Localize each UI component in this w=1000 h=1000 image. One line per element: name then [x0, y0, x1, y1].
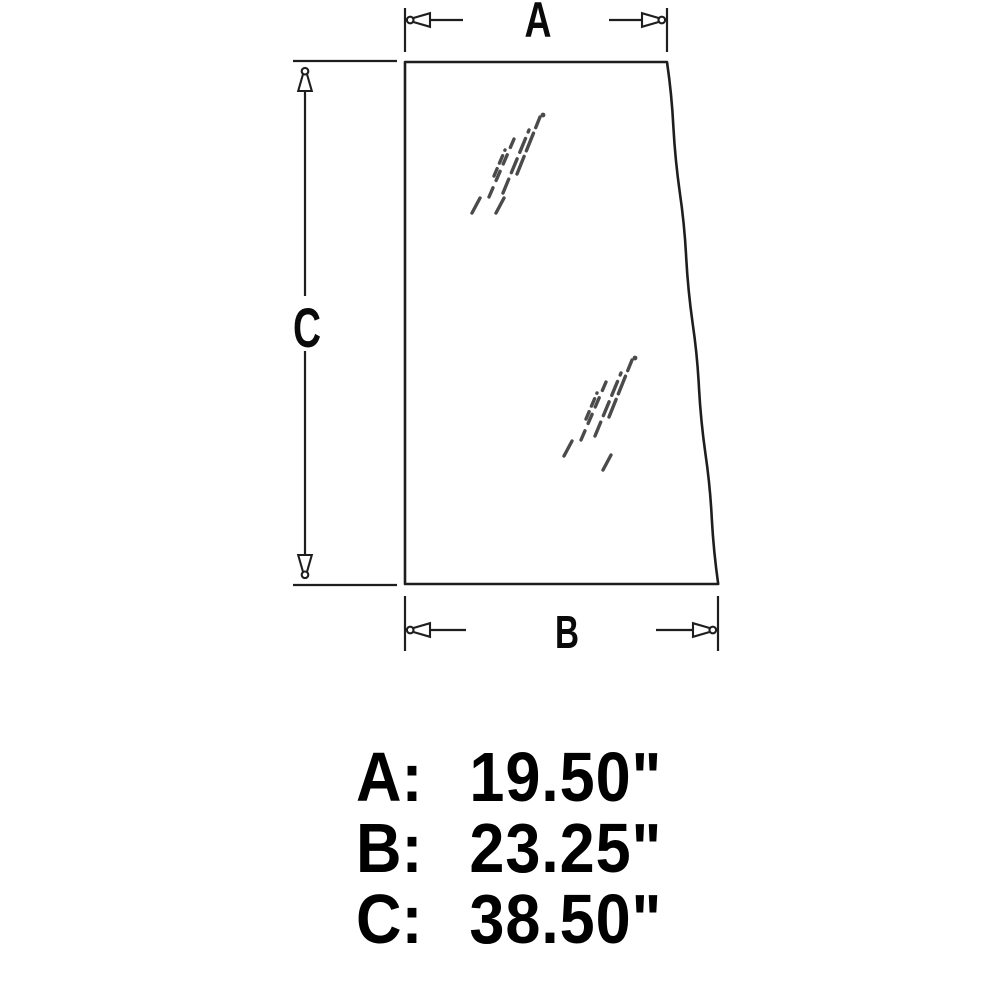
glass-panel-outline	[405, 62, 718, 584]
dim-a-label: A	[525, 0, 552, 48]
measurement-value-c: 38.50"	[469, 884, 662, 955]
dim-b-left-arrow-icon	[407, 623, 430, 637]
measurement-row-b: B: 23.25"	[356, 813, 662, 884]
product-dimension-diagram: A C B A: 19.50" B:	[0, 0, 1000, 1000]
dimension-a: A	[405, 0, 667, 52]
dim-c-down-arrow-icon	[298, 555, 312, 578]
measurement-label-c: C:	[356, 884, 469, 955]
glass-panel-drawing: A C B	[0, 0, 1000, 700]
measurement-label-b: B:	[356, 813, 469, 884]
dim-b-right-arrow-icon	[693, 623, 716, 637]
dimension-c: C	[293, 61, 397, 585]
dimension-b: B	[405, 596, 718, 658]
measurement-value-b: 23.25"	[469, 813, 662, 884]
measurement-row-a: A: 19.50"	[356, 742, 662, 813]
dim-c-up-arrow-icon	[298, 68, 312, 91]
measurement-label-a: A:	[356, 742, 469, 813]
measurement-list: A: 19.50" B: 23.25" C: 38.50"	[356, 742, 662, 955]
measurement-row-c: C: 38.50"	[356, 884, 662, 955]
dim-c-label: C	[293, 296, 321, 359]
dim-b-label: B	[555, 606, 579, 658]
dim-a-left-arrow-icon	[407, 13, 430, 27]
dim-a-right-arrow-icon	[642, 13, 665, 27]
measurement-value-a: 19.50"	[469, 742, 662, 813]
